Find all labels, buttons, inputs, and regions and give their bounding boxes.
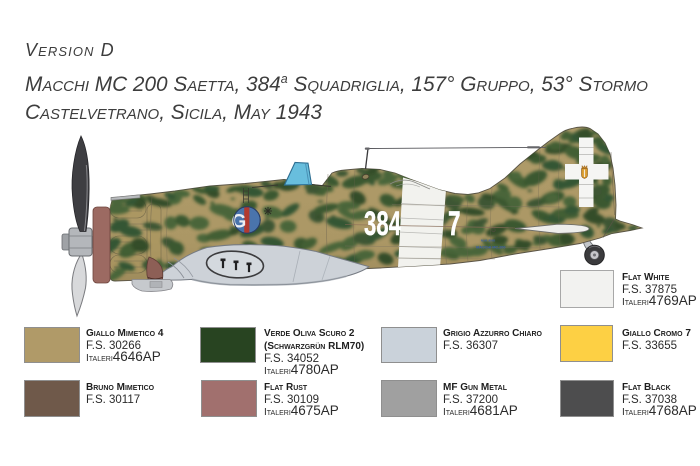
svg-text:384: 384 bbox=[364, 205, 401, 243]
svg-text:7: 7 bbox=[448, 205, 460, 243]
svg-text:MACCHI MC.200: MACCHI MC.200 bbox=[476, 245, 506, 249]
svg-text:M.M. 8565: M.M. 8565 bbox=[481, 238, 496, 242]
